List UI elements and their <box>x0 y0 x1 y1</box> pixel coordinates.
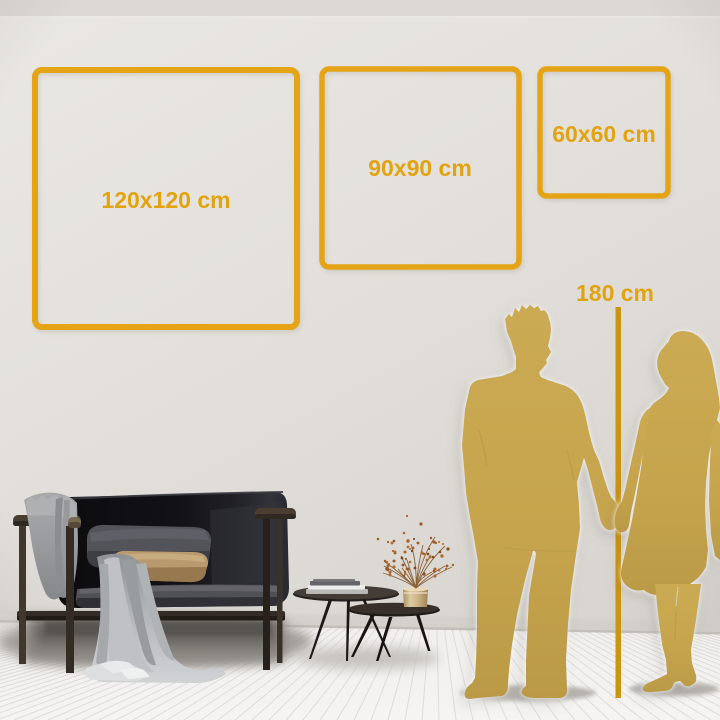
svg-text:90x90 cm: 90x90 cm <box>368 155 472 181</box>
svg-text:120x120 cm: 120x120 cm <box>101 187 230 213</box>
svg-text:60x60 cm: 60x60 cm <box>552 121 656 147</box>
svg-text:180 cm: 180 cm <box>576 280 654 306</box>
